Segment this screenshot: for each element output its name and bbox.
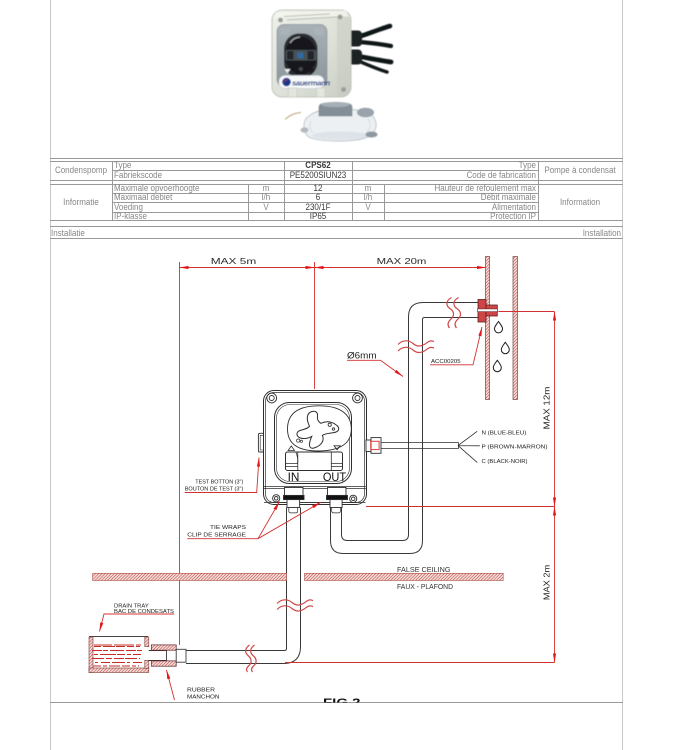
svg-text:FALSE CEILING: FALSE CEILING bbox=[397, 567, 451, 574]
svg-text:P (BROWN-MARRON): P (BROWN-MARRON) bbox=[482, 444, 548, 450]
svg-text:C (BLACK-NOIR): C (BLACK-NOIR) bbox=[482, 459, 528, 465]
svg-text:CLIP DE SERRAGE: CLIP DE SERRAGE bbox=[187, 532, 246, 538]
svg-text:BOUTON DE TEST (3"): BOUTON DE TEST (3") bbox=[185, 487, 244, 493]
svg-text:RUBBER: RUBBER bbox=[187, 688, 215, 694]
svg-text:MAX 2m: MAX 2m bbox=[543, 565, 552, 600]
svg-text:MAX 20m: MAX 20m bbox=[377, 257, 427, 266]
svg-text:MANCHON: MANCHON bbox=[187, 695, 219, 701]
svg-text:N (BLUE-BLEU): N (BLUE-BLEU) bbox=[482, 431, 527, 437]
svg-text:ACC00205: ACC00205 bbox=[431, 359, 461, 365]
svg-text:MAX 5m: MAX 5m bbox=[211, 257, 257, 266]
svg-text:Ø6mm: Ø6mm bbox=[347, 350, 377, 360]
svg-text:FAUX - PLAFOND: FAUX - PLAFOND bbox=[397, 584, 453, 591]
svg-text:FIG.2: FIG.2 bbox=[323, 697, 361, 709]
svg-text:OUT: OUT bbox=[323, 470, 347, 484]
svg-text:IN: IN bbox=[288, 470, 300, 484]
svg-text:TIE WRAPS: TIE WRAPS bbox=[210, 525, 246, 531]
svg-text:TEST BOTTON (3"): TEST BOTTON (3") bbox=[195, 479, 243, 485]
svg-text:MAX 12m: MAX 12m bbox=[543, 386, 552, 429]
